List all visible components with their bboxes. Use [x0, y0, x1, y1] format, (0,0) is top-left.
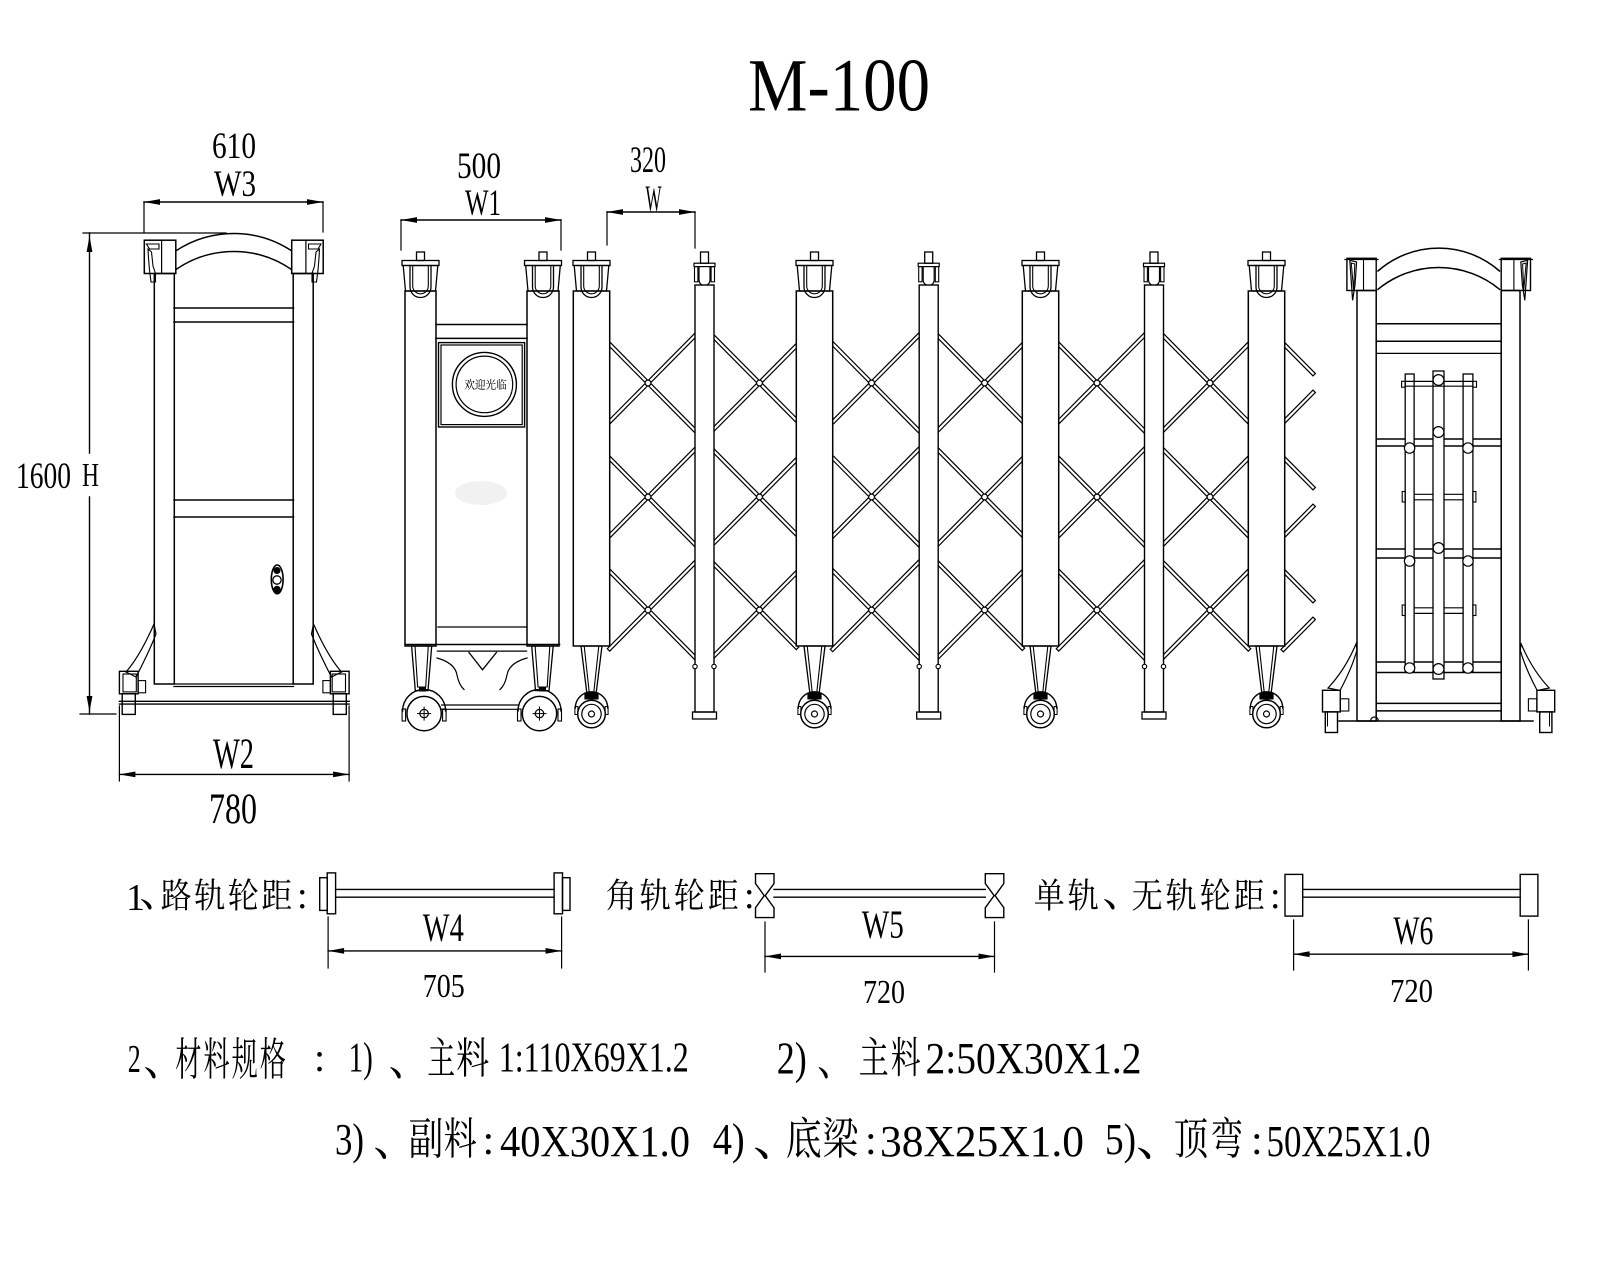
svg-text:50X25X1.0: 50X25X1.0 [1267, 1117, 1431, 1166]
svg-text:1: 1 [126, 877, 145, 919]
svg-text:2: 2 [128, 1037, 141, 1080]
svg-text:500: 500 [457, 146, 501, 187]
svg-text:H: H [82, 457, 99, 494]
svg-text::: : [744, 875, 755, 917]
svg-text:2:50X30X1.2: 2:50X30X1.2 [926, 1034, 1142, 1083]
svg-text:320: 320 [630, 140, 666, 181]
svg-text:W6: W6 [1393, 908, 1433, 953]
svg-text:W: W [646, 179, 662, 220]
svg-text::: : [865, 1118, 877, 1164]
svg-text:W1: W1 [465, 183, 501, 224]
svg-text:W5: W5 [862, 902, 904, 947]
svg-text:W4: W4 [423, 905, 464, 950]
svg-text:M-100: M-100 [748, 45, 930, 128]
svg-text:720: 720 [1390, 973, 1433, 1010]
svg-text:1600: 1600 [16, 456, 71, 497]
svg-text:4): 4) [713, 1115, 745, 1164]
svg-text:W2: W2 [213, 731, 254, 778]
svg-text:1): 1) [349, 1036, 373, 1082]
svg-text:W3: W3 [214, 164, 256, 205]
svg-text::: : [1251, 1118, 1263, 1164]
svg-text::: : [483, 1118, 495, 1164]
svg-text:2): 2) [777, 1032, 807, 1083]
svg-text::: : [1270, 875, 1281, 917]
svg-text:40X30X1.0: 40X30X1.0 [500, 1117, 690, 1166]
svg-text:720: 720 [863, 974, 905, 1011]
svg-text:3): 3) [335, 1115, 364, 1164]
svg-text::: : [297, 875, 308, 917]
svg-text:780: 780 [209, 786, 257, 833]
svg-text:705: 705 [423, 968, 465, 1005]
svg-text:5): 5) [1105, 1115, 1136, 1164]
svg-text::: : [314, 1035, 325, 1080]
svg-text:1:110X69X1.2: 1:110X69X1.2 [499, 1035, 689, 1081]
svg-text:38X25X1.0: 38X25X1.0 [880, 1117, 1084, 1166]
svg-text:610: 610 [212, 126, 256, 167]
